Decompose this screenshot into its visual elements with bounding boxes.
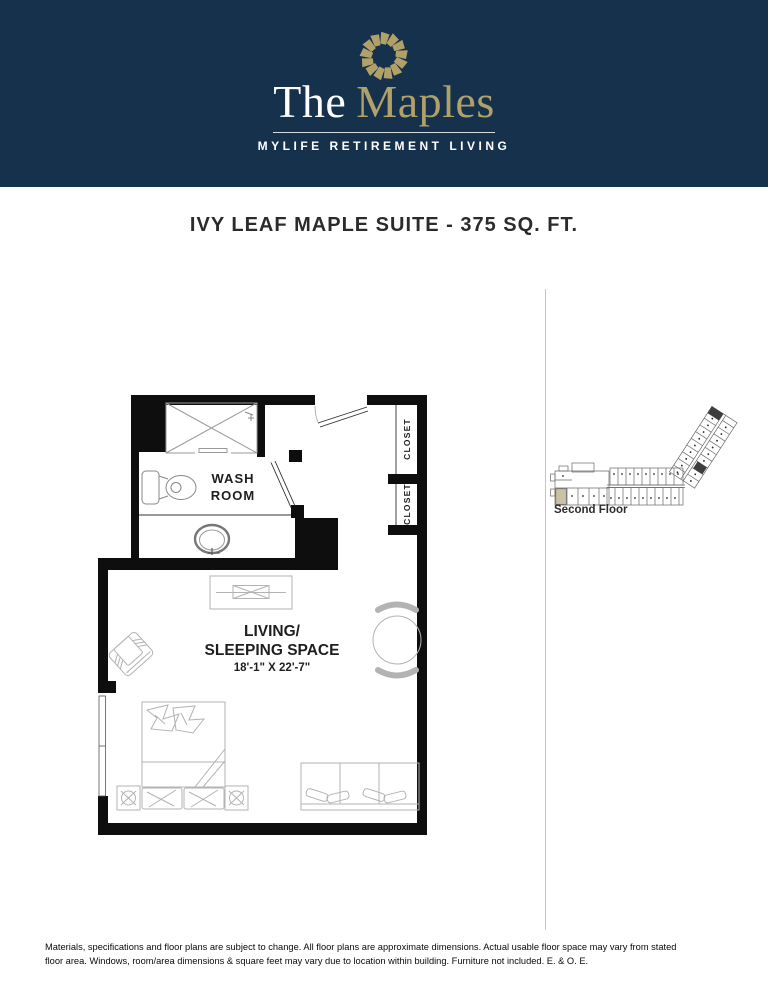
brand-the: The: [273, 76, 346, 127]
bed: [142, 702, 225, 787]
walls: [98, 395, 427, 835]
page-title: IVY LEAF MAPLE SUITE - 375 SQ. FT.: [0, 214, 768, 237]
nightstand-left: [117, 786, 140, 810]
disclaimer-line-2: floor area. Windows, room/area dimension…: [45, 954, 745, 968]
key-plan: [545, 388, 740, 523]
disclaimer: Materials, specifications and floor plan…: [45, 940, 745, 968]
keyplan-highlight-unit: [556, 489, 567, 505]
living-label-line2: SLEEPING SPACE: [205, 642, 340, 659]
dining-table: [373, 605, 421, 676]
brand-wordmark: TheMaples: [0, 79, 768, 125]
furniture: [108, 576, 421, 810]
toilet: [142, 471, 196, 504]
disclaimer-line-1: Materials, specifications and floor plan…: [45, 940, 745, 954]
shower: [166, 403, 257, 456]
closet-bottom-label: CLOSET: [402, 483, 412, 525]
brand-underline: [273, 132, 495, 133]
armchair: [108, 631, 155, 677]
brand-tagline: MYLIFE RETIREMENT LIVING: [0, 139, 768, 153]
entry-door: [315, 406, 368, 427]
dresser: [210, 576, 292, 609]
brand-maples: Maples: [356, 76, 494, 127]
keyplan-unit-dots: [562, 417, 727, 499]
bed-pillows: [142, 788, 224, 809]
header-band: TheMaples MYLIFE RETIREMENT LIVING: [0, 0, 768, 187]
window: [99, 696, 106, 796]
washroom-door: [271, 461, 295, 508]
sink: [139, 515, 291, 555]
page: TheMaples MYLIFE RETIREMENT LIVING IVY L…: [0, 0, 768, 994]
keyplan-angled-wing: [669, 406, 737, 488]
closet-top-label: CLOSET: [402, 418, 412, 460]
shower-head-icon: [245, 412, 254, 421]
living-label-line1: LIVING/: [244, 623, 301, 640]
sofa: [301, 763, 419, 810]
washroom-label-line2: ROOM: [211, 488, 255, 503]
nightstand-right: [225, 786, 248, 810]
washroom-label-line1: WASH: [212, 471, 255, 486]
keyplan-left-block: [551, 463, 610, 505]
living-dimensions: 18'-1" X 22'-7": [234, 662, 310, 674]
second-floor-caption: Second Floor: [554, 504, 627, 516]
floor-plan: WASH ROOM CLOSET CLOSET LIVING/ SLEEPING…: [75, 383, 435, 843]
content-divider: [545, 289, 546, 930]
